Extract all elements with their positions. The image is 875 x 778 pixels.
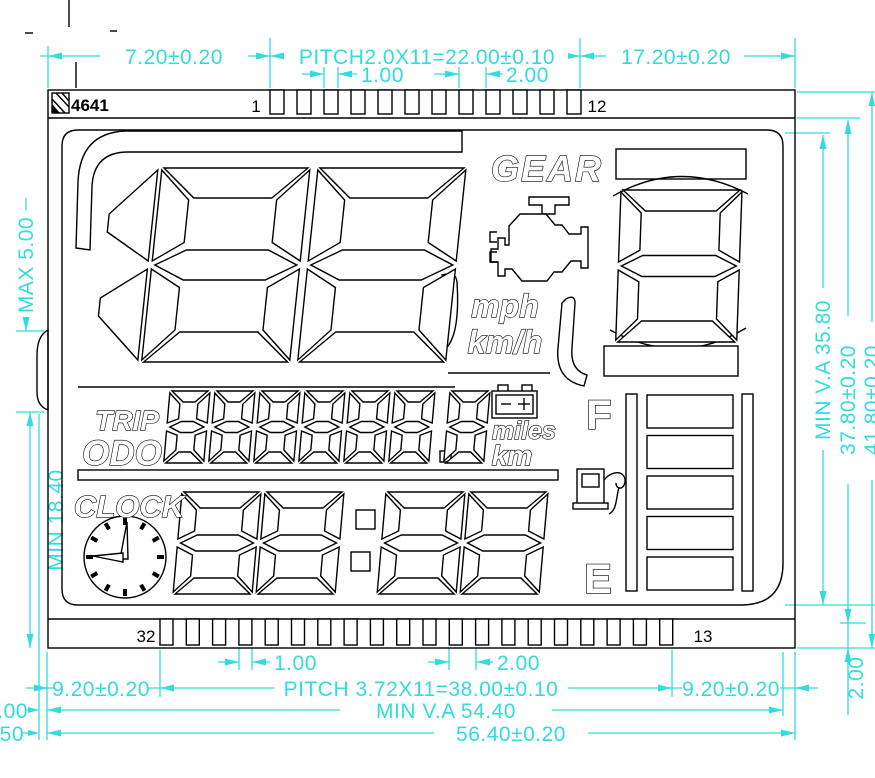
colon-dot — [356, 510, 375, 529]
top-pin — [351, 90, 365, 114]
dim-right-outer-height: 41.80±0.20 — [861, 345, 875, 455]
top-pin — [324, 90, 338, 114]
mph-label: mph — [471, 288, 539, 324]
glass-fill-tab — [37, 330, 48, 410]
seven-seg-digit — [299, 391, 345, 463]
bottom-pin — [449, 619, 462, 645]
seven-seg-digit — [298, 168, 466, 362]
odometer-display — [164, 391, 490, 463]
lcd-segment — [394, 422, 429, 433]
seven-seg-digit — [460, 492, 548, 594]
bottom-pin — [344, 619, 357, 645]
seven-seg-digit — [209, 391, 255, 463]
hatch-icon — [52, 93, 69, 113]
top-pin — [378, 90, 392, 114]
top-pin — [405, 90, 419, 114]
clock-label: CLOCK — [74, 489, 187, 524]
top-pin — [270, 90, 284, 114]
speed-display — [94, 168, 466, 362]
lcd-segment — [467, 535, 541, 551]
seven-seg-digit — [173, 492, 261, 594]
dim-bottom-pin-pitch: 2.00 — [497, 652, 540, 675]
dim-bottom-width: 56.40±0.20 — [456, 723, 566, 746]
fuel-segment-bars — [647, 395, 733, 590]
lcd-content: GEAR mph km/h TRIP ODO miles km CLOCK F … — [74, 131, 753, 602]
bottom-pin — [476, 619, 489, 645]
dim-bottom-left: 9.20±0.20 — [52, 678, 150, 701]
bottom-pin — [186, 619, 199, 645]
bottom-pin — [292, 619, 305, 645]
title-block: 4641 — [52, 93, 109, 115]
dim-right-bottom-strip: 2.00 — [845, 657, 868, 700]
top-pin — [297, 90, 311, 114]
seven-seg-digit — [616, 190, 742, 342]
bottom-pin — [370, 619, 383, 645]
top-pin — [486, 90, 500, 114]
dim-top-pin-width: 1.00 — [361, 64, 404, 87]
bottom-pin — [213, 619, 226, 645]
top-pin — [540, 90, 554, 114]
lcd-segment — [621, 256, 737, 277]
top-pin-last-label: 12 — [588, 97, 607, 116]
fuel-bar — [647, 557, 733, 590]
lcd-segment — [153, 250, 298, 280]
dim-bottom-pin-width: 1.00 — [274, 652, 317, 675]
fuel-bar — [647, 395, 733, 428]
dim-bottom-right: 9.20±0.20 — [682, 678, 780, 701]
part-number: 4641 — [71, 96, 109, 115]
colon-dot — [351, 552, 370, 571]
bottom-pin — [397, 619, 410, 645]
lcd-segment — [449, 422, 484, 433]
lcd-segment — [169, 422, 204, 433]
lcd-segment — [384, 535, 458, 551]
bottom-pin — [528, 619, 541, 645]
fuel-bar — [647, 476, 733, 509]
bottom-pin — [239, 619, 252, 645]
bottom-pin — [555, 619, 568, 645]
battery-icon — [492, 385, 537, 418]
bottom-pin — [633, 619, 646, 645]
gear-indicator — [604, 149, 748, 376]
km-label: km — [492, 440, 532, 471]
bottom-pin — [160, 619, 173, 645]
seven-seg-digit — [389, 391, 435, 463]
lcd-drawing-sheet: 7.20±0.20 PITCH2.0X11=22.00±0.10 1.00 2.… — [0, 0, 875, 778]
dim-top-pin-pitch: 2.00 — [506, 64, 549, 87]
dim-right-va: MIN V.A 35.80 — [812, 300, 835, 440]
fuel-empty-label: E — [584, 555, 612, 602]
seven-seg-digit — [377, 492, 465, 594]
gear-label: GEAR — [491, 148, 603, 189]
fuel-rail-left — [626, 394, 637, 591]
bottom-pin — [318, 619, 331, 645]
fuel-rail-right — [742, 394, 753, 591]
edge-reference-marks — [25, 0, 117, 88]
fuel-pump-icon — [573, 469, 625, 514]
clock-display — [173, 492, 548, 594]
top-pin — [567, 90, 581, 114]
dim-top-right: 17.20±0.20 — [621, 46, 731, 69]
dim-right-height: 37.80±0.20 — [837, 345, 860, 455]
dim-left-max: MAX 5.00 — [15, 217, 38, 313]
top-pin-row — [270, 90, 581, 114]
fuel-bar — [647, 517, 733, 550]
bottom-pin-left-label: 32 — [137, 627, 156, 646]
bottom-pin — [607, 619, 620, 645]
check-engine-icon — [490, 197, 588, 281]
top-pin — [513, 90, 527, 114]
seven-seg-digit — [142, 168, 310, 362]
dim-edge-clipped-upper: .00 — [0, 700, 28, 723]
trip-label: TRIP — [95, 405, 159, 436]
bottom-pin — [581, 619, 594, 645]
lcd-segment — [180, 535, 254, 551]
top-pin — [459, 90, 473, 114]
bottom-pin — [660, 619, 673, 645]
dim-top-left: 7.20±0.20 — [125, 46, 223, 69]
top-pin — [432, 90, 446, 114]
lcd-segment — [304, 422, 339, 433]
bottom-pin — [265, 619, 278, 645]
seven-seg-digit — [254, 391, 300, 463]
clock-icon — [84, 516, 166, 598]
lcd-segment — [349, 422, 384, 433]
kmh-label: km/h — [468, 324, 543, 360]
top-pin-first-label: 1 — [251, 97, 260, 116]
seven-seg-digit — [444, 391, 490, 463]
drawing-canvas: 7.20±0.20 PITCH2.0X11=22.00±0.10 1.00 2.… — [0, 0, 875, 778]
dim-bottom-pitch: PITCH 3.72X11=38.00±0.10 — [284, 678, 559, 701]
lcd-segment — [94, 269, 148, 360]
fuel-bar — [647, 436, 733, 469]
dim-bottom-va: MIN V.A 54.40 — [376, 700, 516, 723]
lcd-segment — [263, 535, 337, 551]
bottom-pin-row — [160, 619, 673, 645]
lcd-segment — [214, 422, 249, 433]
lcd-segment — [622, 190, 740, 211]
lcd-segment — [104, 170, 158, 261]
lcd-segment — [618, 321, 736, 342]
speed-swoosh-right — [558, 297, 587, 386]
bottom-pin — [502, 619, 515, 645]
bottom-pin-right-label: 13 — [694, 627, 713, 646]
fuel-full-label: F — [586, 391, 612, 438]
seven-seg-digit — [344, 391, 390, 463]
odo-label: ODO — [82, 434, 162, 473]
dim-edge-clipped-lower: 50 — [0, 723, 24, 746]
seven-seg-digit — [256, 492, 344, 594]
lcd-segment — [259, 422, 294, 433]
seven-seg-digit — [164, 391, 210, 463]
bottom-pin — [423, 619, 436, 645]
lcd-segment — [309, 250, 454, 280]
